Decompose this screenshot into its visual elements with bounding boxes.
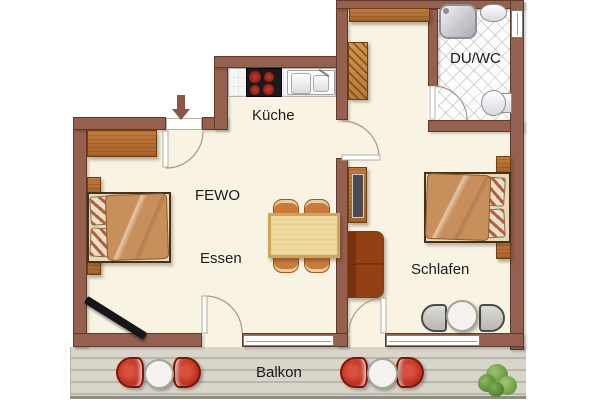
wall-left [73, 117, 87, 347]
wall-right [510, 0, 524, 350]
balcony-doorway-floor-left [202, 333, 242, 347]
duvet [105, 193, 169, 261]
duvet [425, 173, 491, 241]
kitchen-sink-basin [313, 75, 329, 92]
entrance-arrow-head-icon [172, 109, 190, 120]
patio-table [144, 359, 174, 389]
cooktop-burner [250, 85, 260, 95]
patio-table [367, 358, 398, 389]
label-balcony: Balkon [256, 365, 302, 381]
patio-chair [116, 357, 144, 388]
label-living: FEWO [195, 188, 240, 204]
hall-doorway-floor [336, 120, 348, 158]
dining-chair [304, 256, 330, 273]
shower-drain-icon [443, 8, 449, 14]
window-bathroom [511, 10, 523, 38]
dining-chair [273, 256, 299, 273]
nightstand [496, 242, 511, 259]
label-bedroom: Schlafen [411, 262, 469, 278]
wall-top-left-a [73, 117, 166, 130]
hall-sideboard [349, 8, 430, 22]
label-bathroom: DU/WC [450, 51, 501, 67]
cooktop-burner [249, 71, 261, 83]
living-wardrobe [87, 130, 157, 157]
balcony-doorway-floor-right [348, 333, 385, 347]
window-bedroom [386, 335, 480, 346]
label-dining: Essen [200, 251, 242, 267]
window-living [243, 335, 334, 346]
wall-hall-upper [336, 0, 348, 120]
plant-foliage [488, 382, 504, 397]
wall-kitchen-top [214, 56, 344, 68]
dining-table [268, 213, 340, 258]
label-kitchen: Küche [252, 108, 295, 124]
floor-plan: Küche DU/WC FEWO Essen Schlafen Balkon [0, 0, 600, 400]
toilet-bowl [481, 90, 506, 116]
bedroom-table [446, 300, 478, 332]
plant [478, 360, 518, 398]
kitchen-sink-basin [291, 73, 311, 94]
sofa [347, 231, 384, 298]
tv-screen [352, 174, 364, 218]
washbasin [480, 4, 507, 22]
cooktop-burner [263, 84, 274, 95]
hall-wardrobe [348, 42, 368, 100]
bedroom-chair [421, 304, 447, 332]
entrance-arrow-icon [177, 95, 185, 109]
bathroom-door-leaf [430, 86, 435, 119]
sofa-cushion-line [356, 263, 383, 264]
patio-chair [340, 357, 368, 388]
cooktop-burner [264, 72, 274, 82]
nightstand [496, 156, 511, 173]
